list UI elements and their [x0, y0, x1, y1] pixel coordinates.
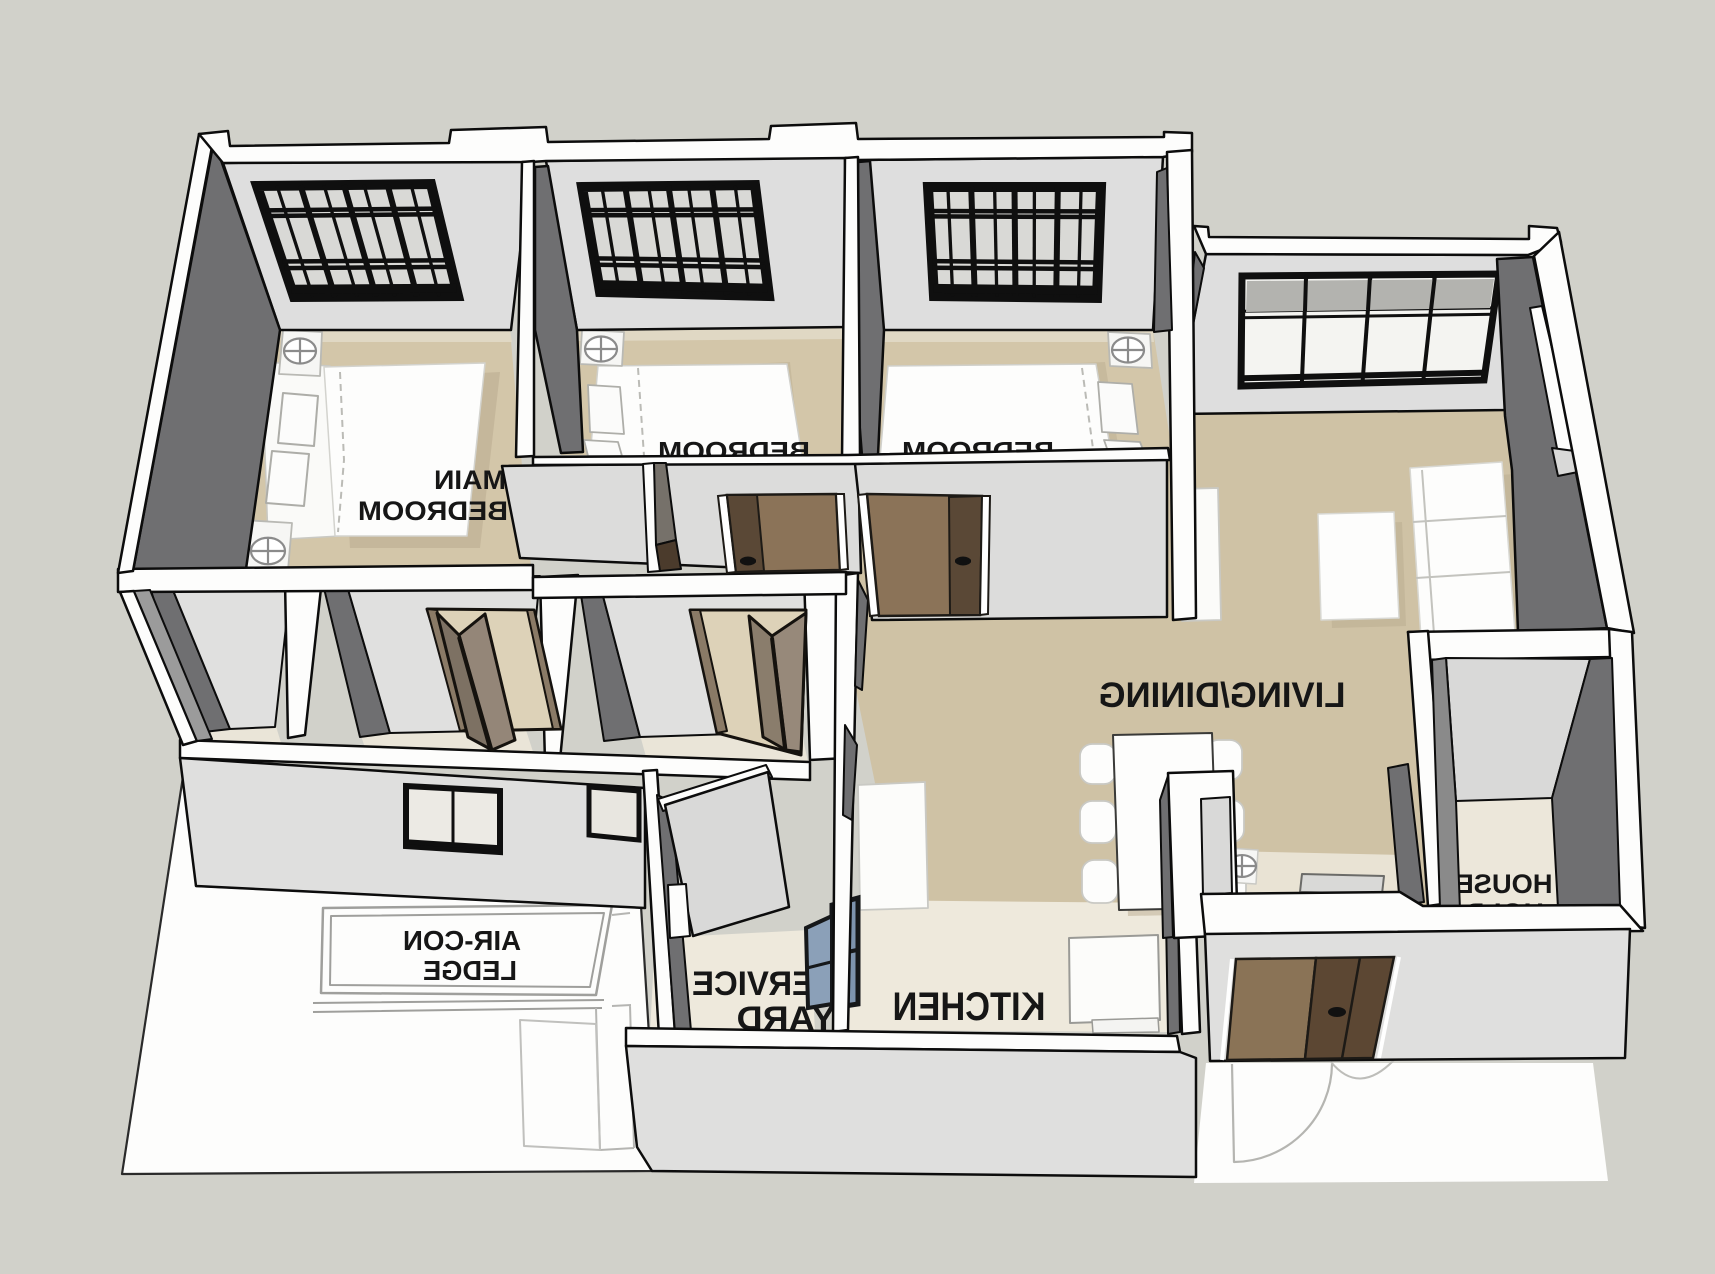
svg-text:BEDROOM: BEDROOM — [358, 496, 508, 526]
svg-text:KITCHEN: KITCHEN — [893, 985, 1046, 1029]
svg-text:LEDGE: LEDGE — [423, 955, 517, 986]
svg-text:LIVING/DINING: LIVING/DINING — [1099, 676, 1346, 715]
svg-text:AIR-CON: AIR-CON — [403, 925, 521, 956]
svg-text:MAIN: MAIN — [434, 465, 506, 495]
svg-text:HOUSE: HOUSE — [1456, 869, 1553, 899]
